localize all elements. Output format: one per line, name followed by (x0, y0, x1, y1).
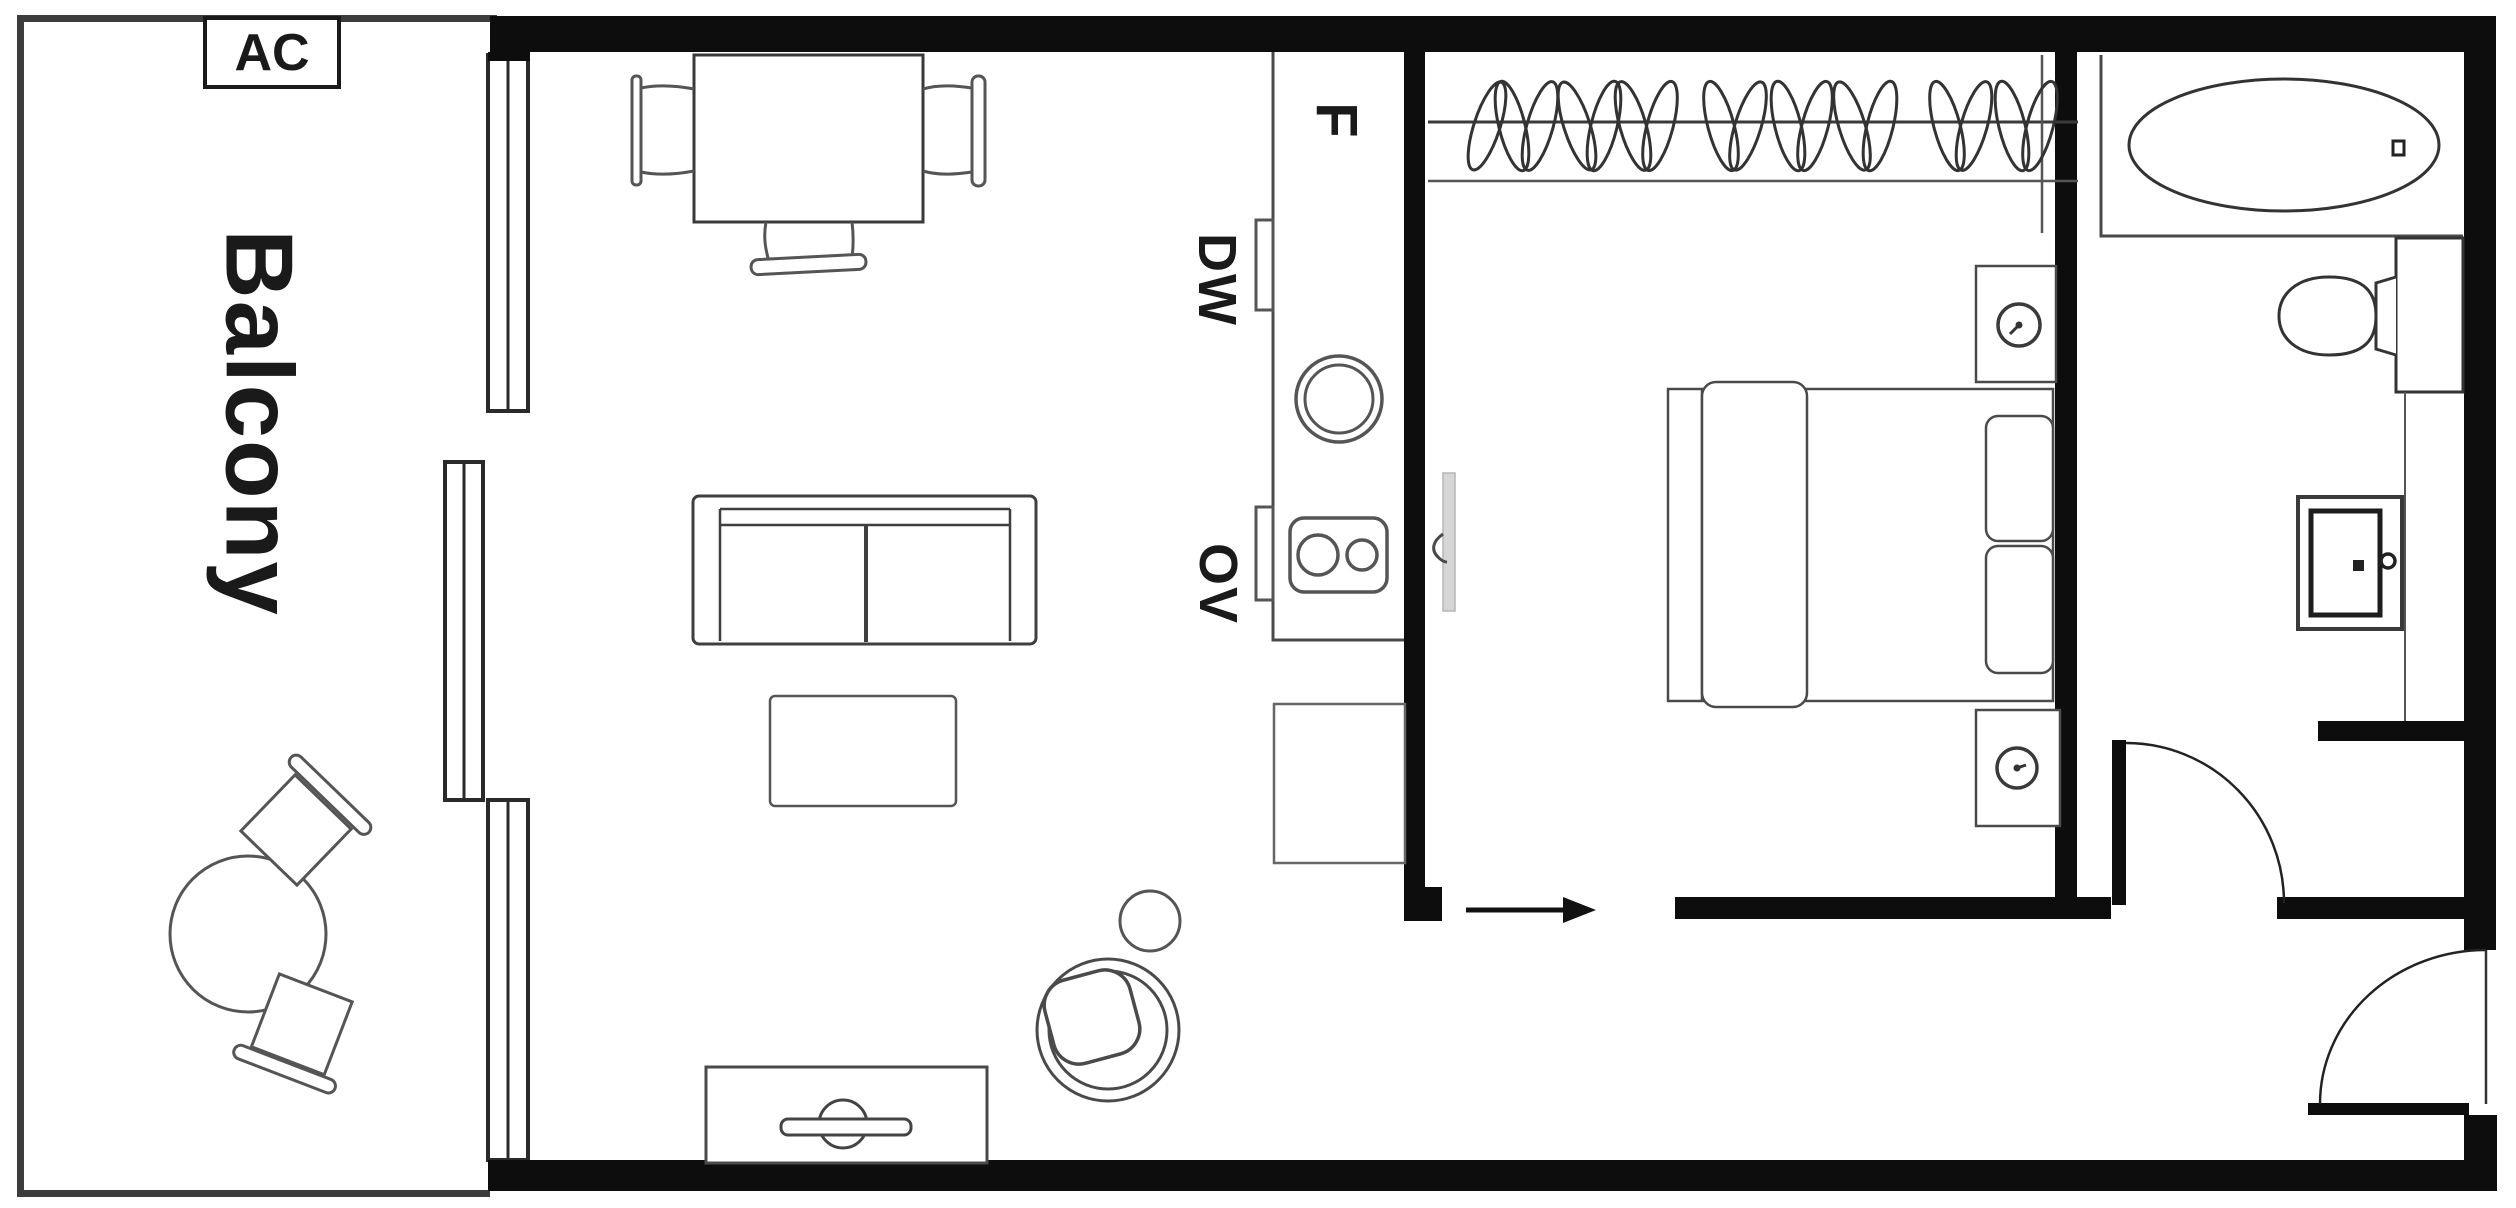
svg-text:AC: AC (234, 24, 309, 82)
svg-text:Balcony: Balcony (206, 229, 313, 616)
svg-text:F: F (1304, 102, 1369, 137)
svg-text:OV: OV (1188, 543, 1248, 625)
svg-text:DW: DW (1187, 233, 1247, 327)
